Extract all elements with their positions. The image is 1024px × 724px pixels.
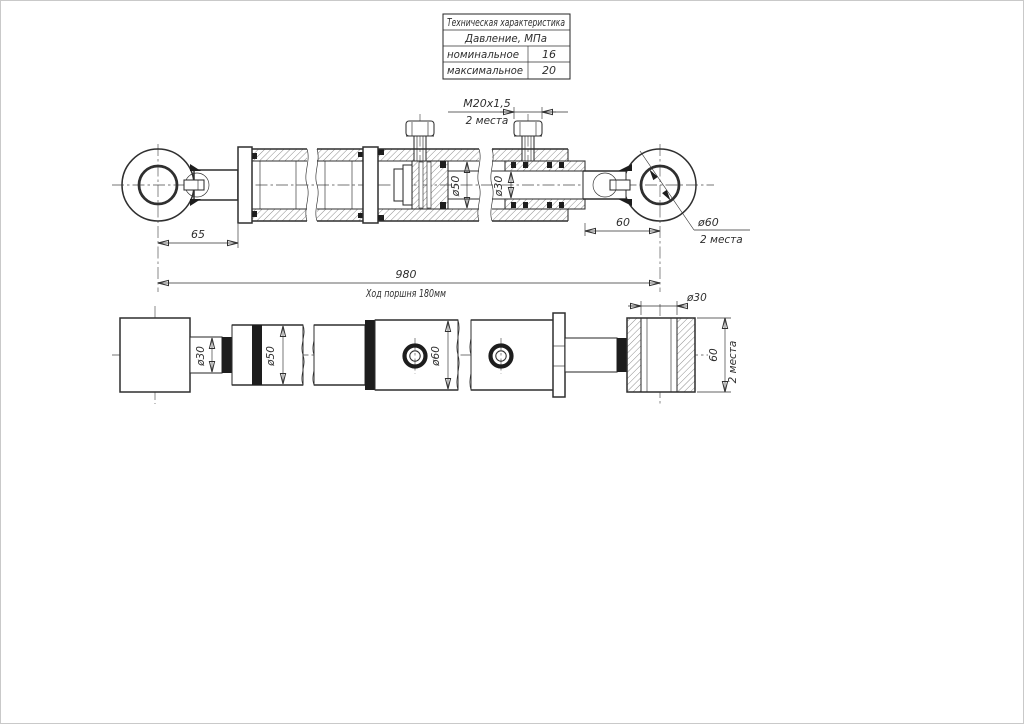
plan-eye-hole-dim-label: ø30 [686, 292, 707, 304]
plan-dim-eye-hole: ø30 [628, 292, 707, 315]
eye-hole-dim-label: ø60 [697, 216, 719, 229]
spec-row-nominal-label: номинальное [447, 49, 519, 61]
plan-flange [553, 313, 565, 397]
thread-note-label: 2 места [466, 115, 509, 127]
plan-eye-width-note: 2 места [727, 341, 739, 384]
dim-eye-offset-left: 65 [158, 224, 238, 248]
bore-dim-label: ø50 [449, 176, 462, 198]
mid-flange [363, 147, 378, 223]
plan-rod-dim-label: ø30 [195, 346, 207, 367]
rear-flange [238, 147, 252, 223]
spec-table-title: Техническая характеристика [447, 17, 565, 29]
rod-dim-label: ø30 [492, 176, 505, 198]
dim-thread-callout: M20x1,5 2 места [448, 97, 568, 127]
spec-row-max-label: максимальное [447, 65, 523, 77]
plan-eye-width-label: 60 [708, 348, 720, 362]
technical-drawing: Техническая характеристика Давление, МПа… [0, 0, 1024, 724]
spec-row-nominal-value: 16 [542, 48, 556, 61]
dim-60-label: 60 [616, 216, 630, 229]
eye-hole-note-label: 2 места [700, 234, 743, 246]
plan-barrel-dim-label: ø60 [430, 346, 442, 367]
dim-980-label: 980 [396, 268, 417, 281]
plan-seal-band-1 [222, 337, 232, 373]
plan-view: ø30 ø50 ø60 [112, 292, 739, 406]
stroke-note-label: Ход поршня 180мм [365, 288, 446, 300]
dim-65-label: 65 [191, 228, 205, 241]
plan-eye-right-section [627, 318, 695, 392]
thread-size-label: M20x1,5 [463, 97, 511, 110]
weld-right-top [618, 164, 632, 171]
spec-table: Техническая характеристика Давление, МПа… [443, 14, 570, 79]
weld-right-bottom [618, 199, 632, 206]
plan-barrel-2 [471, 320, 553, 390]
plan-seal-band-2 [617, 338, 627, 372]
plan-sleeve-dim-label: ø50 [265, 346, 277, 367]
spec-row-max-value: 20 [542, 64, 556, 77]
plan-eye-block-left [120, 318, 190, 392]
drawing-sheet: Техническая характеристика Давление, МПа… [0, 0, 1024, 724]
plan-rod-right [565, 338, 617, 372]
dim-overall-length: 980 Ход поршня 180мм [158, 268, 660, 300]
side-section-view: M20x1,5 2 места ø50 ø30 65 60 ø60 2 [112, 97, 750, 300]
spec-table-subtitle: Давление, МПа [464, 33, 547, 45]
